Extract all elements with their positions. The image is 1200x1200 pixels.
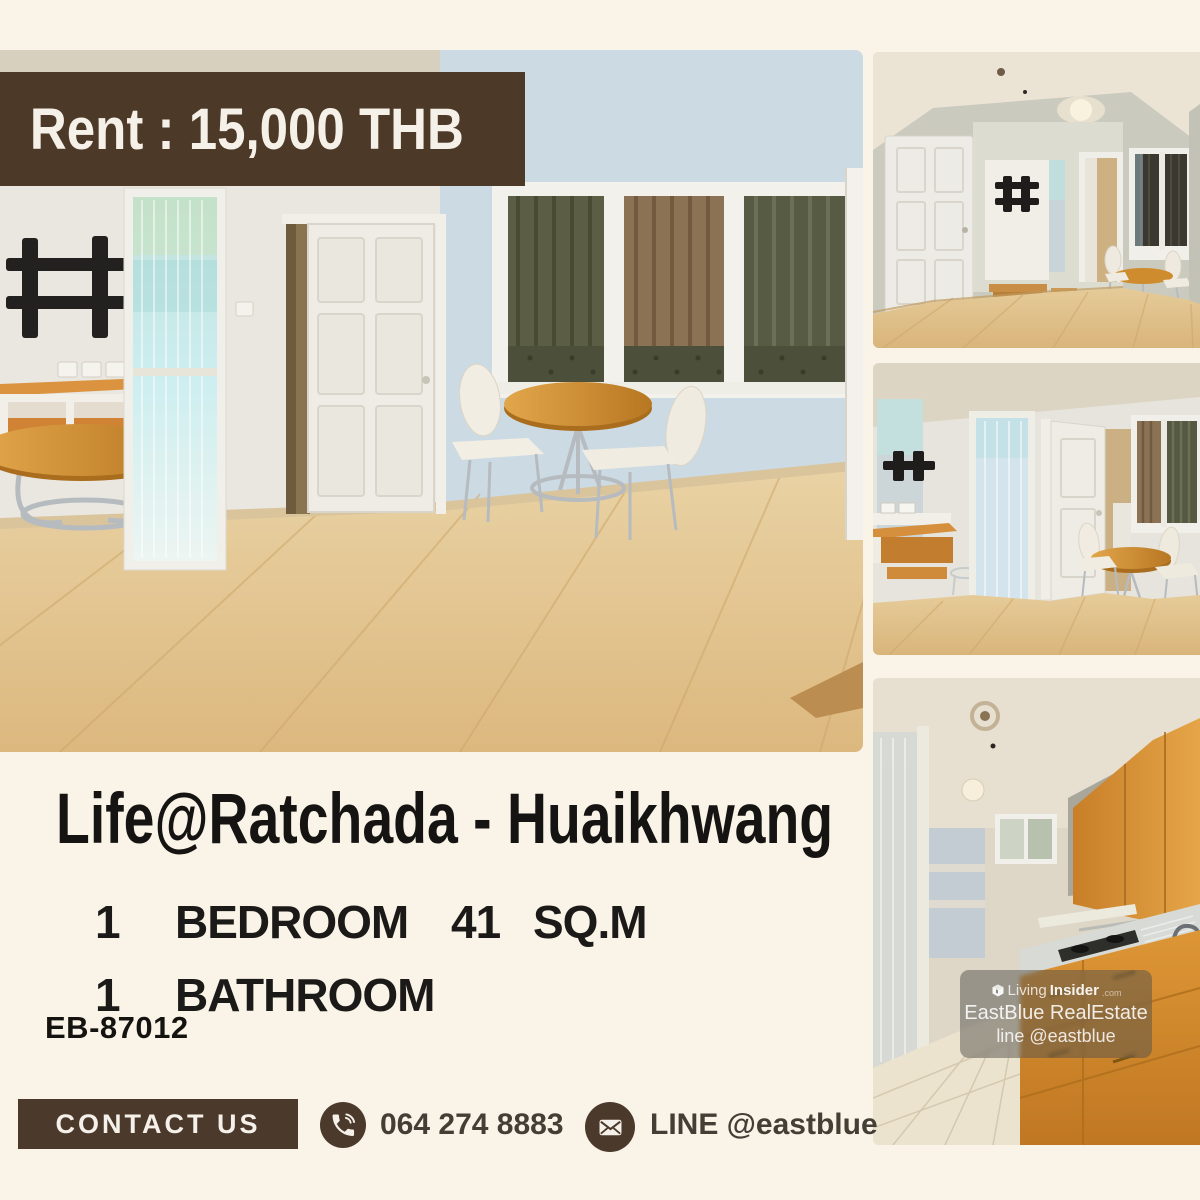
area-value: 41	[451, 899, 500, 945]
watermark: LivingInsider.com EastBlue RealEstate li…	[960, 970, 1152, 1058]
phone-number[interactable]: 064 274 8883	[380, 1108, 564, 1142]
watermark-brand-tld: .com	[1102, 988, 1122, 1000]
contact-us-label: CONTACT US	[56, 1109, 261, 1140]
livinginsider-logo-icon	[991, 984, 1005, 998]
rent-banner-label: Rent : 15,000 THB	[0, 96, 464, 163]
kitchen-illustration	[873, 678, 1200, 1145]
line-contact[interactable]: LINE @eastblue	[650, 1108, 878, 1142]
watermark-brand-insider: Insider	[1050, 982, 1099, 1000]
watermark-brand-living: Living	[1008, 982, 1047, 1000]
phone-icon	[320, 1102, 366, 1148]
rental-flyer: Rent : 15,000 THB LivingInsider.com East…	[0, 0, 1200, 1200]
photo-living-room-mid-right	[873, 363, 1200, 655]
photo-living-room-top-right	[873, 52, 1200, 348]
listing-title: Life@Ratchada - Huaikhwang	[56, 779, 833, 860]
rent-banner: Rent : 15,000 THB	[0, 72, 525, 186]
envelope-icon	[585, 1102, 635, 1152]
contact-us-button[interactable]: CONTACT US	[18, 1099, 298, 1149]
bedroom-label: BEDROOM	[175, 899, 408, 945]
area-unit: SQ.M	[533, 899, 647, 945]
living-room-dining-illustration	[873, 363, 1200, 655]
watermark-agency: EastBlue RealEstate	[964, 1002, 1147, 1025]
bathroom-label: BATHROOM	[175, 972, 434, 1018]
bedroom-count: 1	[95, 899, 120, 945]
watermark-line-account: line @eastblue	[996, 1026, 1115, 1047]
listing-code: EB-87012	[45, 1010, 189, 1046]
living-room-angle-illustration	[873, 52, 1200, 348]
watermark-brand: LivingInsider.com	[991, 982, 1122, 1000]
photo-kitchen	[873, 678, 1200, 1145]
